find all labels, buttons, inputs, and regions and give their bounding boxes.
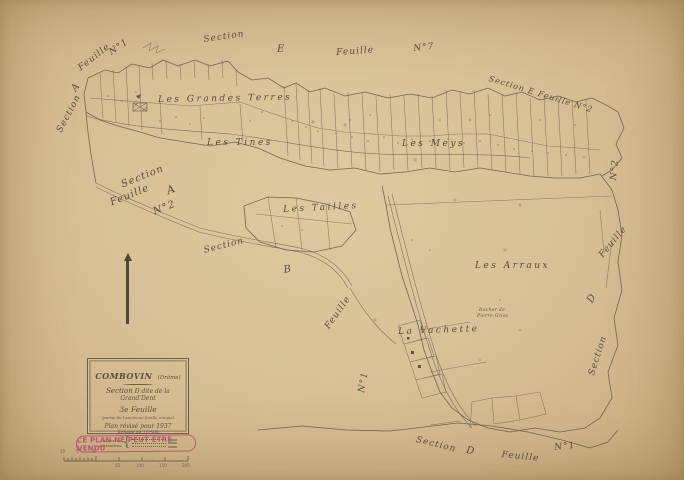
- place-name-les-arraux: Les Arraux: [475, 262, 550, 271]
- band-left-closure: [84, 78, 88, 112]
- bottom-parcel-cluster: [430, 392, 546, 428]
- cartouche-section-line: Section D dite de la Grand'Dent: [88, 387, 188, 402]
- revision-line: Plan révisé pour 1937: [88, 423, 188, 430]
- edge-label-bottomleft-b: B: [283, 265, 293, 276]
- scalebar-label: 5: [76, 449, 79, 454]
- parcel-number-dots: [107, 91, 585, 361]
- section-word: Section: [106, 387, 133, 395]
- cartouche-commune-line: COMBOVIN (Drôme): [88, 364, 188, 383]
- north-arrow-bar: [126, 260, 129, 324]
- scalebar-label: 150: [159, 463, 167, 468]
- place-name-rocher-line1: Rocher de: [479, 308, 505, 313]
- band-dividers: [100, 60, 590, 176]
- scalebar-label: 50: [115, 463, 120, 468]
- commune-name: COMBOVIN: [95, 371, 152, 381]
- sheet-note: (partie de l'ancienne feuille unique): [88, 415, 188, 420]
- edge-label-bottom-d: D: [465, 446, 476, 457]
- spur-continuation: [350, 288, 396, 344]
- place-name-rocher-line2: Pierre Grise: [477, 314, 508, 319]
- scalebar-line: [64, 456, 188, 461]
- departement-name: (Drôme): [158, 375, 181, 381]
- title-cartouche: COMBOVIN (Drôme) Section D dite de la Gr…: [87, 358, 189, 434]
- scalebar-label: 10: [60, 449, 65, 454]
- place-name-les-meys: Les Meys: [402, 140, 465, 149]
- valley-road-b: [392, 194, 476, 426]
- hatch-lines: [133, 103, 147, 111]
- edge-label-right-number: N°2: [610, 159, 621, 181]
- scalebar-label: 100: [136, 463, 144, 468]
- spur-road-b: [96, 187, 348, 288]
- topleft-squiggle: [143, 43, 165, 53]
- house-mark: [411, 351, 414, 354]
- place-name-les-tines: Les Tines: [207, 139, 273, 148]
- right-region-inner: [386, 196, 612, 372]
- sheet-number: 3e Feuille: [88, 405, 188, 414]
- flourish-line: [123, 384, 153, 385]
- left-edge-link: [86, 112, 96, 183]
- house-mark: [418, 365, 421, 368]
- edge-label-top-e: E: [277, 45, 285, 55]
- right-region-outline: [382, 174, 622, 432]
- valley-road-a: [388, 196, 472, 428]
- scalebar-label: 200: [182, 463, 190, 468]
- cadastral-map-sheet: Section A Feuille N°1 Section E Feuille …: [0, 0, 684, 480]
- scalebar-label: 0: [93, 449, 96, 454]
- house-mark: [407, 337, 410, 340]
